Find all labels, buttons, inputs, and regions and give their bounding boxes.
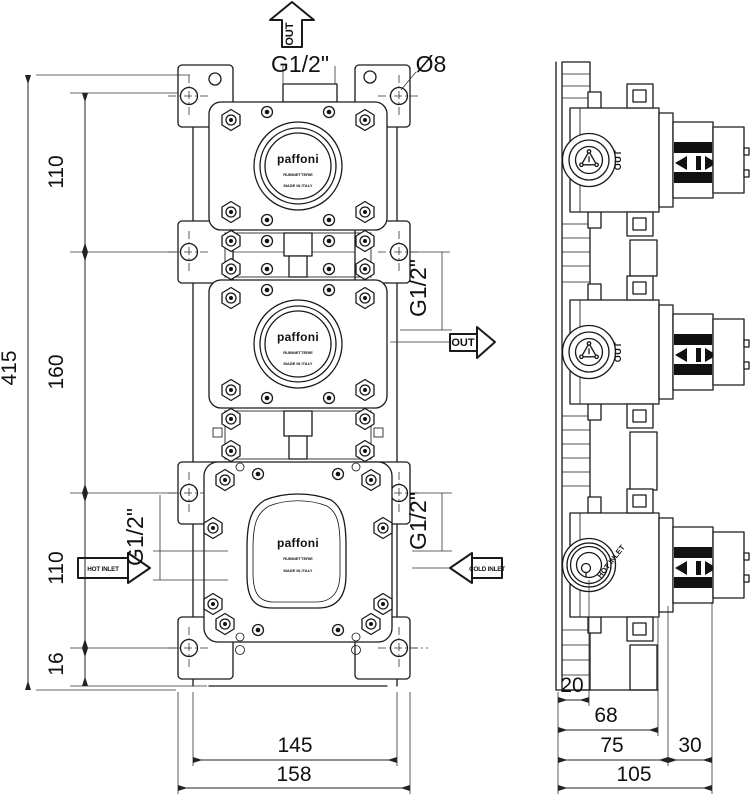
out-arrow-right-label: OUT (451, 337, 475, 349)
front-module-3: paffoni RUBINETTERIE MADE IN ITALY (204, 462, 392, 642)
thermostatic-tub: paffoni RUBINETTERIE MADE IN ITALY (247, 494, 346, 608)
dim-total-height: 415 (0, 350, 21, 385)
front-view: paffoni RUBINETTERIE MADE IN ITALY paffo… (70, 65, 452, 686)
connector-2 (213, 409, 383, 462)
out-arrow-top: OUT (270, 2, 314, 47)
top-outlet-port (283, 84, 337, 102)
brand-logo: paffoni (277, 152, 319, 166)
dim-spacing-bottom: 110 (45, 551, 68, 584)
brand-origin: MADE IN ITALY (284, 568, 313, 573)
thread-label-cold: G1/2" (405, 492, 431, 550)
dim-foot: 16 (45, 652, 68, 675)
thread-label-hot: G1/2" (122, 508, 148, 566)
side-out-label-2: OUT (613, 342, 623, 363)
front-module-2: paffoni RUBINETTERIE MADE IN ITALY (209, 280, 387, 408)
brand-origin: MADE IN ITALY (284, 183, 313, 188)
dim-cartridge-length: 30 (678, 734, 701, 757)
paffoni-ring-2: paffoni RUBINETTERIE MADE IN ITALY (254, 300, 342, 388)
tab-hole (364, 71, 376, 83)
dim-overall-width: 158 (276, 763, 311, 786)
out-arrow-top-label: OUT (284, 22, 296, 46)
dim-inner-width: 145 (277, 734, 312, 757)
technical-drawing-page: paffoni RUBINETTERIE MADE IN ITALY paffo… (0, 0, 752, 800)
brand-origin: MADE IN ITALY (284, 361, 313, 366)
dim-spacing-top: 110 (45, 155, 68, 188)
dim-spacing-middle: 160 (45, 354, 68, 389)
hot-inlet-label: HOT INLET (87, 566, 119, 573)
front-module-1: paffoni RUBINETTERIE MADE IN ITALY (209, 102, 387, 230)
brand-sub: RUBINETTERIE (283, 556, 313, 561)
thread-label-out: G1/2" (405, 259, 431, 317)
dim-port-plane: 20 (560, 674, 583, 697)
brand-sub: RUBINETTERIE (283, 350, 313, 355)
paffoni-ring-1: paffoni RUBINETTERIE MADE IN ITALY (254, 122, 342, 210)
thread-label-top: G1/2" (271, 51, 329, 77)
dim-body-depth: 68 (594, 704, 617, 727)
dim-rough-in: 75 (600, 734, 623, 757)
tab-hole (209, 73, 221, 85)
cold-inlet-arrow: COLD INLET (412, 553, 505, 583)
brand-sub: RUBINETTERIE (283, 172, 313, 177)
dim-overall-depth: 105 (616, 763, 651, 786)
hole-diameter-label: Ø8 (416, 51, 447, 77)
side-out-label-1: OUT (613, 150, 623, 171)
valve-technical-drawing: paffoni RUBINETTERIE MADE IN ITALY paffo… (0, 0, 752, 800)
cold-inlet-label: COLD INLET (469, 566, 505, 573)
brand-logo: paffoni (277, 536, 319, 550)
side-view: OUT OUT HOT INLET (556, 62, 749, 690)
out-arrow-right: OUT (390, 327, 495, 358)
connector-1 (222, 231, 374, 280)
out-port-2 (563, 326, 616, 379)
out-port-1 (563, 134, 616, 187)
brand-logo: paffoni (277, 330, 319, 344)
